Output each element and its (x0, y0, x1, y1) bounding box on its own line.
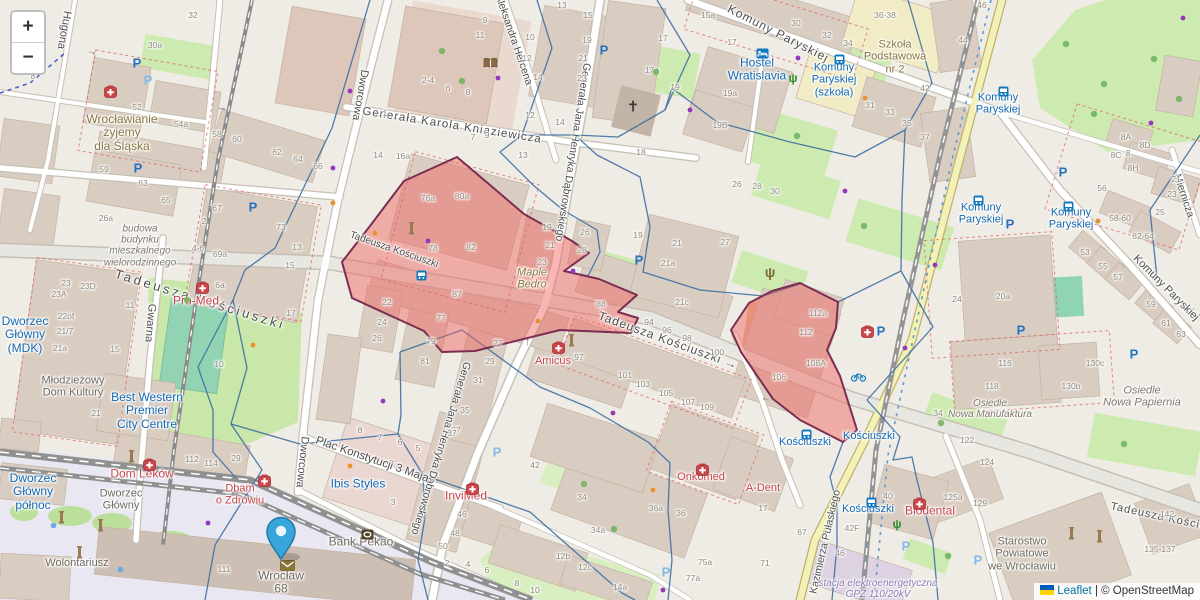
cell-boundary-line (205, 0, 370, 600)
cell-boundary-line (231, 352, 401, 444)
cell-boundary-line (575, 135, 800, 296)
map-canvas[interactable]: HugonaDworcowaDworcowaTadeusza Kościuszk… (0, 0, 1200, 600)
attribution-separator: | (1095, 585, 1098, 597)
zoom-in-button[interactable]: + (12, 12, 44, 43)
cell-boundary-line (901, 130, 905, 271)
zoom-out-button[interactable]: − (12, 43, 44, 73)
highlight-polygon[interactable] (731, 283, 857, 442)
osm-copyright-link[interactable]: © OpenStreetMap (1101, 585, 1194, 597)
highlight-polygon[interactable] (342, 157, 638, 352)
cell-boundary-line (398, 434, 428, 600)
cell-boundary-line (423, 475, 635, 600)
cell-boundary-line (1150, 135, 1200, 278)
overlay-layer (0, 0, 1200, 600)
cell-boundary-line (400, 330, 672, 600)
leaflet-link[interactable]: Leaflet (1057, 585, 1092, 597)
cell-boundary-line (838, 271, 938, 600)
ukraine-flag-icon (1040, 585, 1054, 595)
cell-boundary-line (522, 0, 690, 137)
cell-boundary-line (830, 430, 857, 600)
cell-boundary-line (198, 300, 236, 478)
cell-boundary-line (665, 0, 932, 157)
attribution-bar: Leaflet | © OpenStreetMap (1034, 583, 1200, 600)
zoom-control: + − (10, 10, 46, 75)
